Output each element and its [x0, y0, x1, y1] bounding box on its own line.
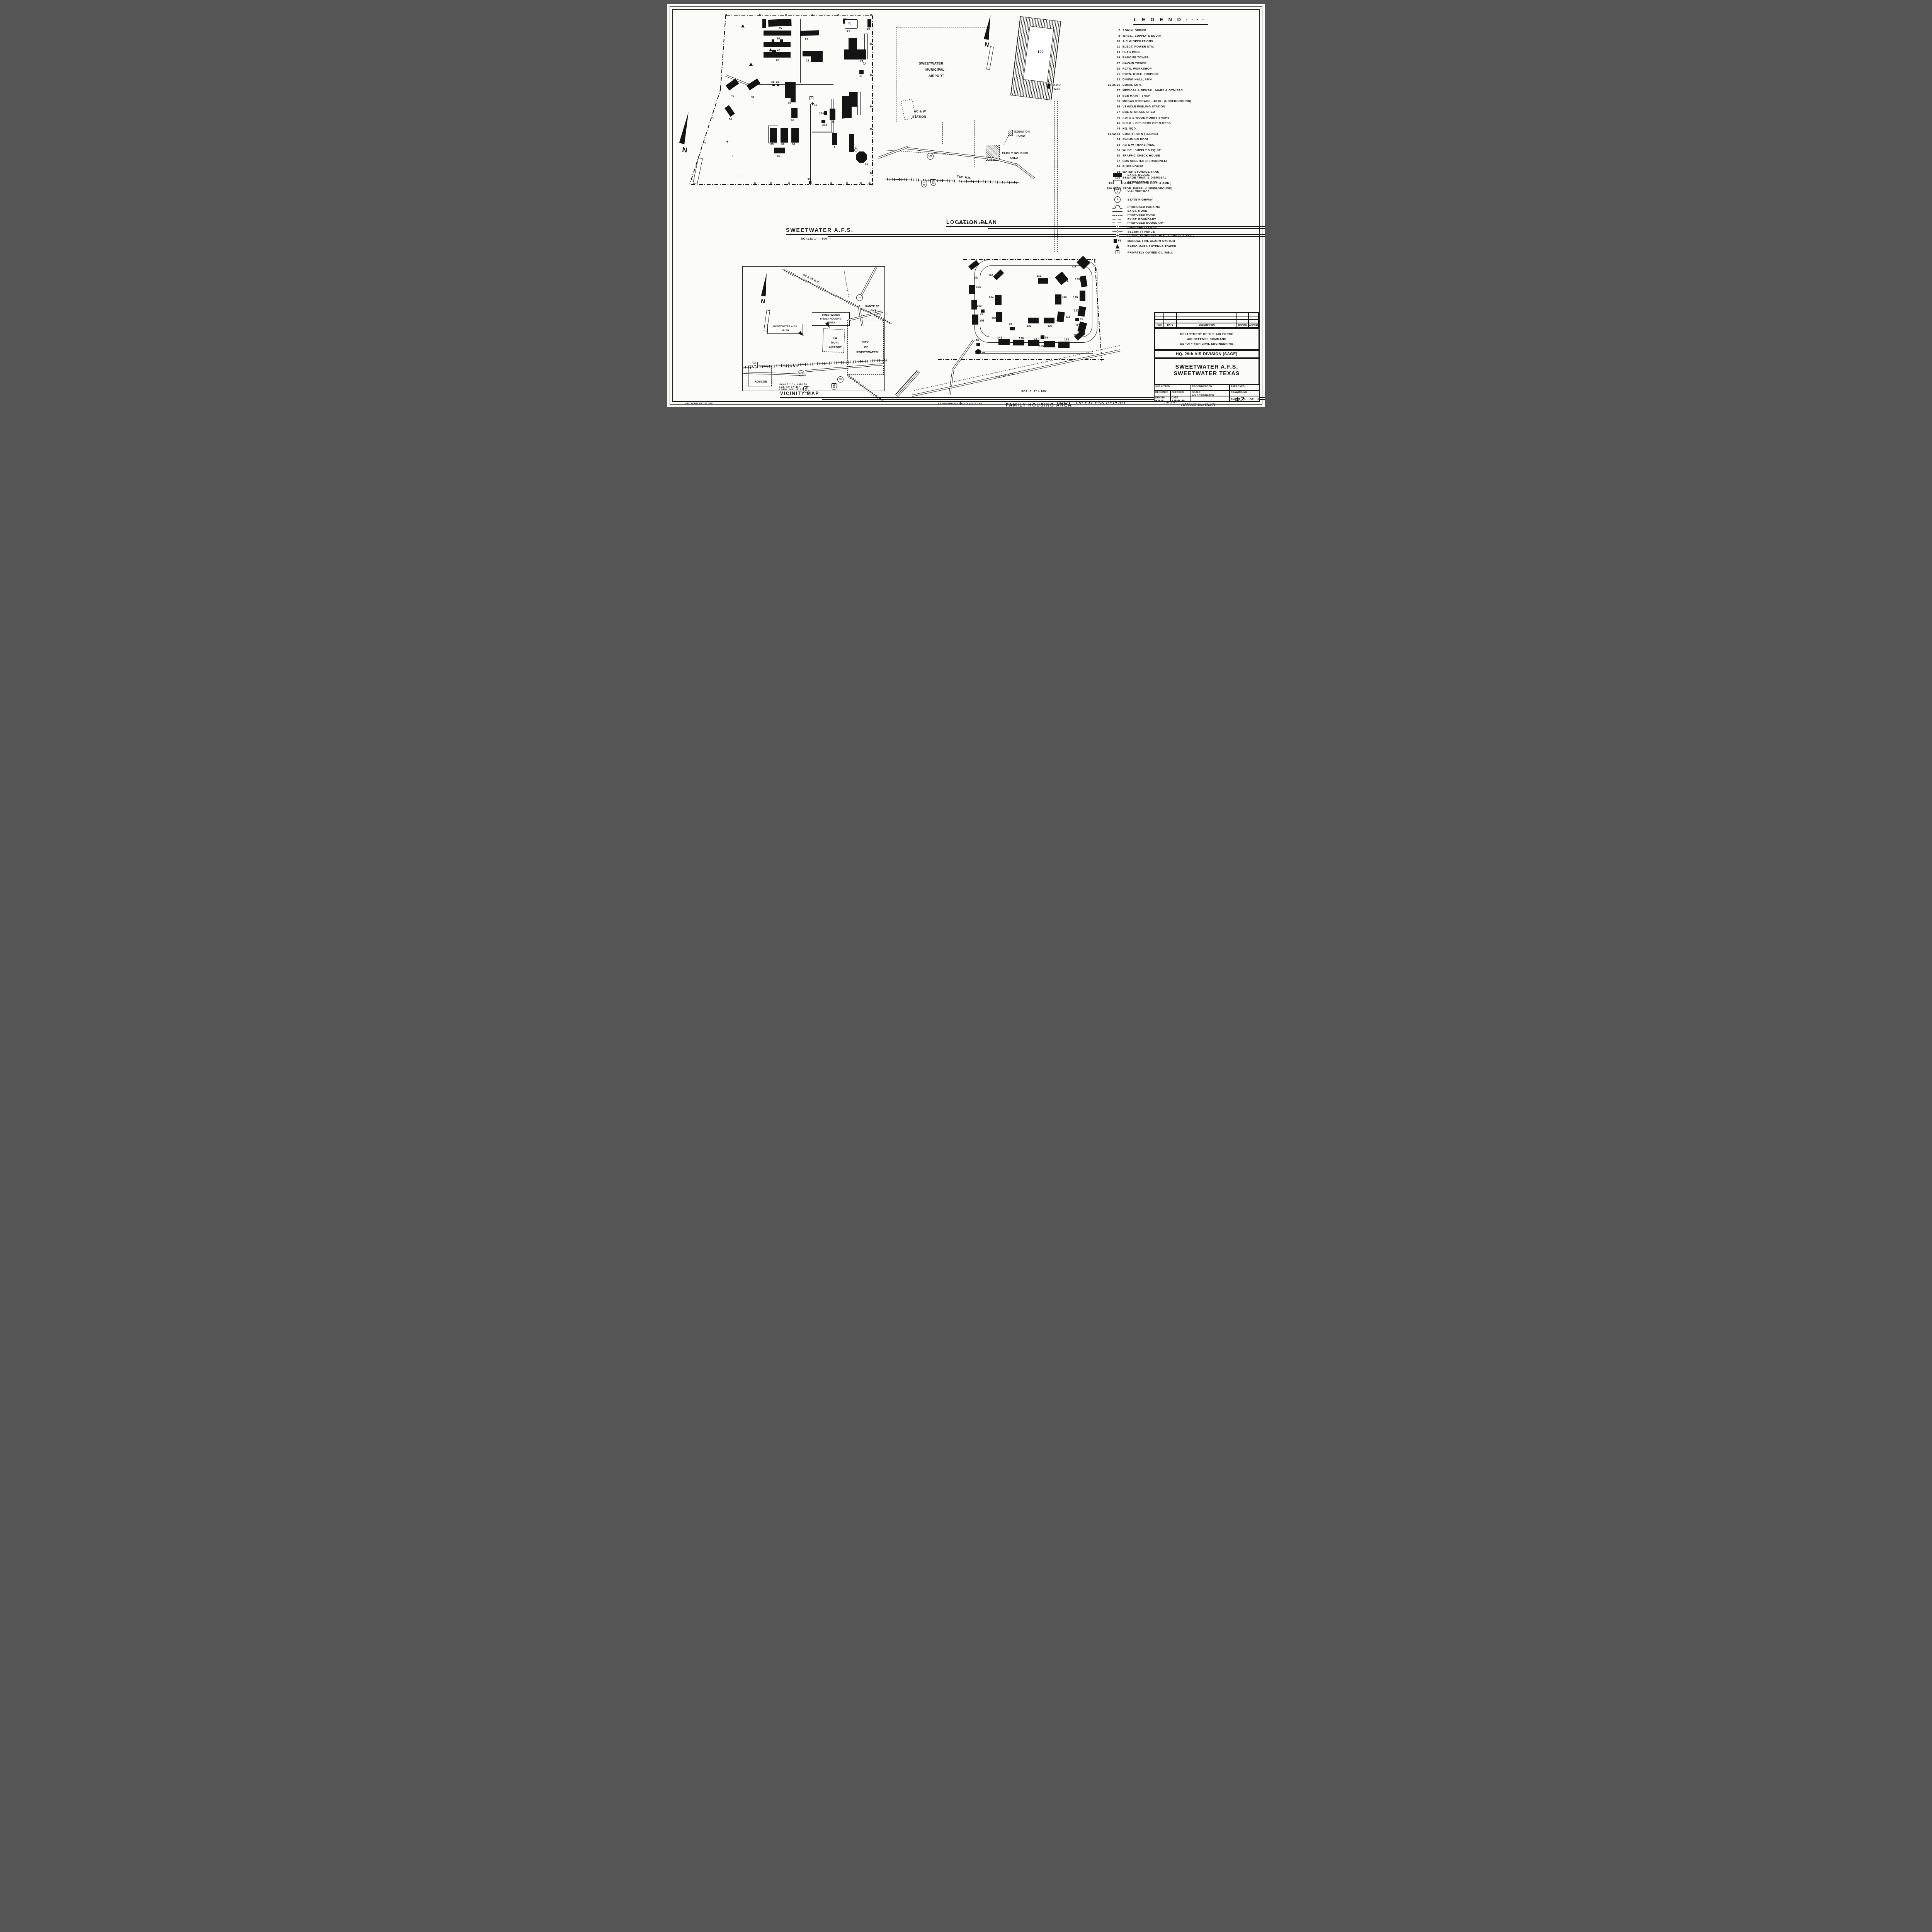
- legend-item: 17NAVAID TOWER: [1099, 61, 1227, 65]
- sheet-total: 1: [1255, 398, 1259, 401]
- revision-table: REV. DATE DESCRIPTION DRAWN APPR'D: [1154, 312, 1259, 328]
- legend-item: 99WATER STORAGE TANK: [1099, 170, 1227, 173]
- map-lbl: 99: [982, 352, 985, 354]
- map-lbl: 114: [1064, 280, 1068, 283]
- map-lbl: 129: [1075, 324, 1080, 327]
- legend-item: 200 &201STOR. DIESEL (UNDERGROUND): [1099, 187, 1227, 190]
- map-lbl: FS: [1080, 318, 1083, 321]
- map-lbl: 102: [992, 317, 997, 320]
- map-lbl: 122: [1027, 325, 1032, 328]
- legend-items: 7ADMIN. OFFICE8WHSE., SUPPLY & EQUIP.10A…: [1099, 29, 1227, 192]
- map-lbl: 103: [977, 305, 982, 308]
- map-b: [1044, 341, 1055, 347]
- map-lbl: 107: [974, 277, 979, 279]
- map-lbl: 121: [1071, 265, 1077, 268]
- agency-block: DEPARTMENT OF THE AIR FORCE AIR DEFENSE …: [1154, 328, 1259, 350]
- legend-item: 35MOGAS STORAGE - 40 BL. (UNDERGROUND): [1099, 99, 1227, 103]
- submitted-cell: SUBMITTED: [1154, 385, 1191, 391]
- map-lbl: 116: [1062, 296, 1067, 299]
- map-b: [1058, 342, 1070, 348]
- map-lbl: FS: [980, 314, 983, 316]
- map-lbl: 137: [1034, 338, 1039, 340]
- legend-item: 101-141FAMILY HOUSING (OFF. & AMN.): [1099, 181, 1227, 185]
- vicinity-map-scale: SCALE: 1" = 3 MILES: [779, 384, 807, 386]
- map-b: [969, 285, 975, 294]
- tab-note: TAB "C" OF EXCESS REPORT: [1055, 400, 1126, 406]
- fire-alarm: [981, 310, 985, 313]
- legend-item: 40AUTO & WOOD HOBBY SHOPS: [1099, 116, 1227, 119]
- legend-item: 13FLAG POLE: [1099, 50, 1227, 54]
- apprd-header: APPR'D: [1248, 323, 1259, 328]
- map-b: [1044, 318, 1054, 323]
- legend-item: 55AC & W TRANS./REC.: [1099, 143, 1227, 146]
- map-lbl: 131: [1073, 334, 1078, 337]
- vicinity-map-long: LONG. 100° 28' 22": [779, 389, 804, 391]
- family-housing-title: FAMILY HOUSING AREA: [1006, 403, 1265, 407]
- legend-item: 56WHSE., SUPPLY & EQUIP.: [1099, 148, 1227, 152]
- agency-line: DEPARTMENT OF THE AIR FORCE: [1155, 332, 1259, 337]
- map-lbl: U.S. 80 & 84: [995, 372, 1015, 379]
- water-tank: [975, 349, 981, 354]
- map-lbl: 120: [1048, 325, 1053, 328]
- legend-item: 54SWIMMING POOL: [1099, 138, 1227, 141]
- box-note: HM1995 BoxTX301: [1181, 403, 1216, 407]
- map-lbl: 101: [980, 320, 985, 322]
- map-b: [972, 315, 978, 325]
- legend-item: 48HQ. SQD.: [1099, 127, 1227, 130]
- map-lbl: 141: [997, 337, 1002, 339]
- pump-house: [976, 343, 980, 346]
- site-plan-scale: SCALE: 1" = 100': [801, 237, 828, 240]
- map-lbl: 135: [1039, 345, 1044, 348]
- map-lbl: 98: [976, 339, 979, 342]
- legend-item: 97BUS SHELTER (PERSONNEL): [1099, 159, 1227, 163]
- drawn-header: DRAWN: [1237, 323, 1248, 328]
- empty-cell: [1191, 396, 1230, 401]
- map-lbl: 133: [1064, 338, 1069, 341]
- bus-shelter: [1010, 327, 1015, 330]
- map-b: [996, 312, 1002, 322]
- layout-note: STANDARD D LAYOUT (22 X 34'): [938, 403, 982, 405]
- legend-item: 98PUMP HOUSE: [1099, 165, 1227, 168]
- map-lbl: 139: [1019, 337, 1024, 340]
- legend-item: 100SEWAGE TRMT. & DISPOSAL: [1099, 176, 1227, 179]
- legend-item: 23,25,26DORM. AMN.: [1099, 83, 1227, 87]
- approved-cell: APPROVED: [1230, 385, 1259, 391]
- map-lbl: 106: [988, 274, 993, 277]
- map-lbl: FS: [1045, 337, 1048, 339]
- recommended-cell: RECOMMENDED: [1191, 385, 1230, 391]
- agency-line: AIR DEFENSE COMMAND: [1155, 337, 1259, 342]
- map-b: [1056, 311, 1065, 322]
- map-lbl: 127: [1074, 310, 1079, 312]
- location-plan-scale: SCALE: 1" = 2000': [958, 221, 987, 224]
- family-housing-scale: SCALE: 1" = 100': [1021, 390, 1047, 393]
- sheet-code: A2: [1234, 396, 1245, 404]
- ref-note: Re 291: [1164, 400, 1177, 405]
- map-lbl: 112: [1037, 275, 1041, 277]
- legend-title: L E G E N D · · · ·: [1133, 17, 1208, 25]
- fire-alarm: [1075, 318, 1079, 321]
- map-b: [971, 300, 977, 310]
- date-header: DATE: [1164, 323, 1177, 328]
- map-b: [1038, 278, 1048, 284]
- legend-item: 11ELECT. POWER STA.: [1099, 45, 1227, 48]
- fire-alarm: [1041, 335, 1044, 339]
- legend-item: 27MEDICAL & DENTAL, MARS & GYM FAC.: [1099, 88, 1227, 92]
- map-lbl: 105: [976, 286, 981, 289]
- map-b: [995, 295, 1002, 305]
- legend-item: 20RCTN. WORKSHOP: [1099, 67, 1227, 70]
- form-note: SAC FORM MAY 66 1077: [685, 403, 714, 405]
- legend-item: 14RADOME TOWER: [1099, 56, 1227, 59]
- project-title: SWEETWATER A.F.S.: [1155, 364, 1259, 371]
- checked-cell: CHECKED: [1170, 391, 1191, 396]
- legend-item: 60TRAFFIC CHECK HOUSE: [1099, 154, 1227, 157]
- map-lbl: 97: [1009, 323, 1012, 326]
- project-block: SWEETWATER A.F.S. SWEETWATER TEXAS: [1154, 358, 1259, 385]
- map-b: [1028, 318, 1039, 323]
- map-lbl: 125: [1073, 296, 1078, 299]
- map-b: [1028, 340, 1039, 346]
- location-plan-title: LOCATION PLAN: [946, 219, 1265, 227]
- map-lbl: 118: [1066, 316, 1070, 318]
- legend-item: 10A C W OPERATIONS: [1099, 39, 1227, 43]
- hq-band: HQ. 29th AIR DIVISION (SAGE): [1154, 350, 1259, 358]
- legend-item: 7ADMIN. OFFICE: [1099, 29, 1227, 32]
- map-road: [952, 339, 975, 370]
- map-road: [975, 352, 1093, 354]
- map-lbl: 123: [1075, 278, 1080, 281]
- legend-item: 8WHSE., SUPPLY & EQUIP.: [1099, 34, 1227, 37]
- us-80-84-road: [912, 349, 1120, 396]
- legend-item: 21RCTN. MULTI-PURPOSE: [1099, 72, 1227, 76]
- legend-item: 51,52,53COURT RCTN (TENNIS): [1099, 132, 1227, 136]
- legend-item: 36VEHICLE FUELING STATION: [1099, 105, 1227, 108]
- map-b: [998, 339, 1010, 345]
- legend-item: 45N.C.O. - OFFICERS OPEN MESS: [1099, 121, 1227, 125]
- drawing-sheet: ⊗⊗⊗⊗⊗⊗⊗⊗⊗⊗⊗⊗⊗⊗⊗⊗⊗⊗⊗✕✕✕++++N252623272822≈…: [667, 4, 1265, 407]
- designed-cell: DESIGNED: [1154, 391, 1170, 396]
- description-header: DESCRIPTION: [1177, 323, 1237, 328]
- rev-header: REV.: [1155, 323, 1164, 328]
- map-b: [1013, 340, 1024, 345]
- scale-cell: SCALE AS DESIGNATED: [1191, 391, 1230, 396]
- map-b: [1080, 291, 1085, 301]
- map-b: [1055, 294, 1061, 304]
- drawing-no-cell: DRAWING NO: [1230, 391, 1259, 396]
- map-lbl: 104: [989, 296, 994, 299]
- legend-item: 37BCE STORAGE SHED: [1099, 110, 1227, 114]
- project-subtitle: SWEETWATER TEXAS: [1155, 371, 1259, 377]
- legend-item: 22DINING HALL, AMN.: [1099, 78, 1227, 81]
- legend-item: 28BCE MAINT. SHOP: [1099, 94, 1227, 97]
- agency-line: DEPUTY FOR CIVIL ENGINEERING: [1155, 342, 1259, 347]
